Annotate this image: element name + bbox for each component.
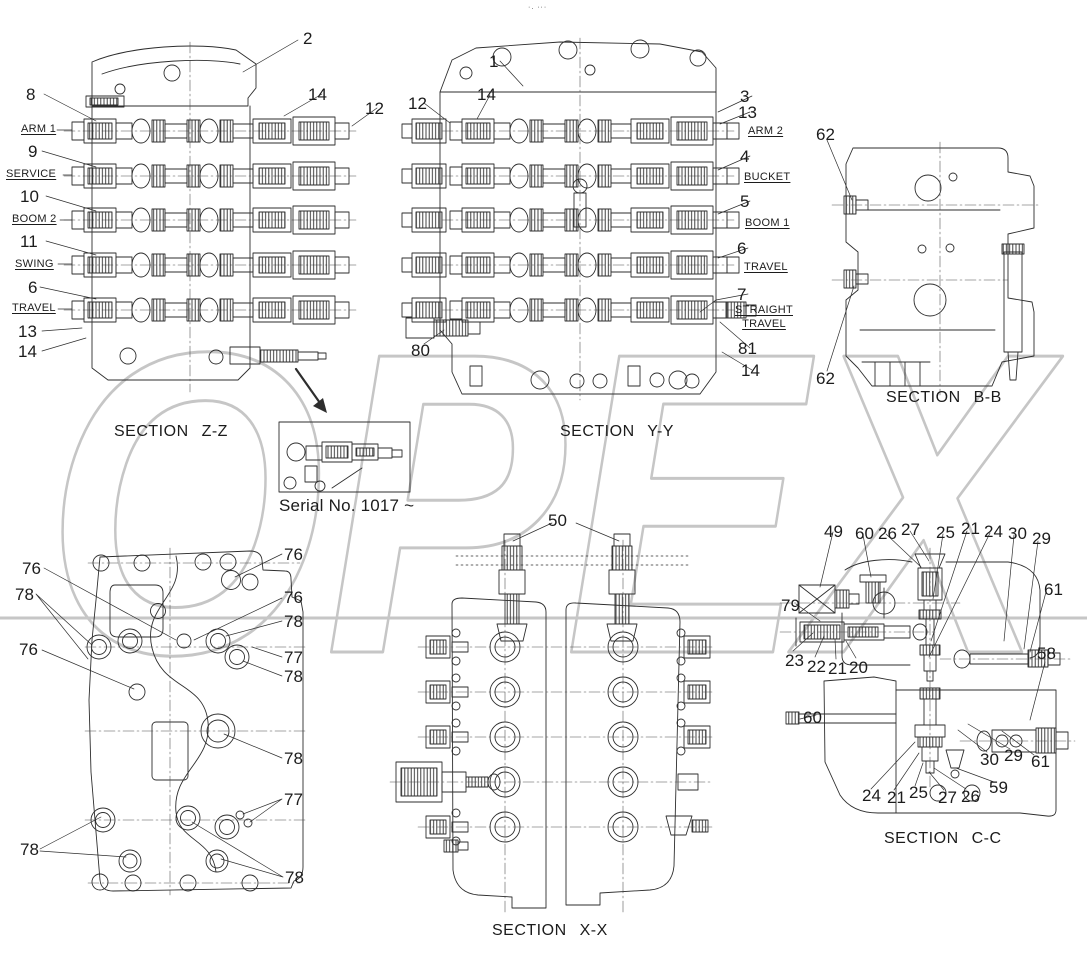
callout-22: 22 <box>807 658 826 676</box>
port-label-arm-2: ARM 2 <box>748 126 783 138</box>
callout-14: 14 <box>477 86 496 104</box>
callout-78: 78 <box>20 841 39 859</box>
callout-21: 21 <box>887 789 906 807</box>
callout-12: 12 <box>365 100 384 118</box>
section-title-yy: SECTION Y-Y <box>560 424 674 441</box>
callout-26: 26 <box>878 525 897 543</box>
port-label-service: SERVICE <box>6 169 56 181</box>
port-label-travel: TRAVEL <box>744 262 788 274</box>
labels-layer: ·. ···SECTION Z-ZSECTION Y-YSECTION B-BS… <box>0 0 1087 959</box>
callout-61: 61 <box>1031 753 1050 771</box>
callout-13: 13 <box>738 104 757 122</box>
callout-29: 29 <box>1004 747 1023 765</box>
callout-76: 76 <box>22 560 41 578</box>
callout-1: 1 <box>489 53 498 71</box>
callout-24: 24 <box>984 523 1003 541</box>
inset-caption: Serial No. 1017 ~ <box>279 497 414 515</box>
callout-7: 7 <box>737 286 746 304</box>
parts-diagram-page: OPEX <box>0 0 1087 959</box>
callout-59: 59 <box>989 779 1008 797</box>
section-title-zz: SECTION Z-Z <box>114 424 228 441</box>
section-title-cc: SECTION C-C <box>884 831 1002 848</box>
callout-4: 4 <box>740 148 749 166</box>
callout-50: 50 <box>548 512 567 530</box>
callout-81: 81 <box>738 340 757 358</box>
callout-77: 77 <box>284 791 303 809</box>
callout-29: 29 <box>1032 530 1051 548</box>
port-label-swing: SWING <box>15 259 54 271</box>
port-label-travel: TRAVEL <box>12 303 56 315</box>
callout-30: 30 <box>980 751 999 769</box>
callout-10: 10 <box>20 188 39 206</box>
callout-30: 30 <box>1008 525 1027 543</box>
callout-62: 62 <box>816 370 835 388</box>
callout-49: 49 <box>824 523 843 541</box>
callout-77: 77 <box>284 649 303 667</box>
callout-20: 20 <box>849 659 868 677</box>
callout-76: 76 <box>284 546 303 564</box>
callout-78: 78 <box>284 750 303 768</box>
callout-60: 60 <box>803 709 822 727</box>
callout-27: 27 <box>938 789 957 807</box>
port-label-straight-travel: STRAIGHT TRAVEL <box>731 303 797 332</box>
callout-23: 23 <box>785 652 804 670</box>
callout-14: 14 <box>308 86 327 104</box>
callout-78: 78 <box>284 613 303 631</box>
callout-60: 60 <box>855 525 874 543</box>
callout-58: 58 <box>1037 645 1056 663</box>
callout-80: 80 <box>411 342 430 360</box>
page-top-marks: ·. ··· <box>528 4 547 11</box>
callout-8: 8 <box>26 86 35 104</box>
callout-78: 78 <box>15 586 34 604</box>
port-label-bucket: BUCKET <box>744 172 790 184</box>
callout-62: 62 <box>816 126 835 144</box>
section-title-xx: SECTION X-X <box>492 923 608 940</box>
port-label-arm-1: ARM 1 <box>21 124 56 136</box>
callout-9: 9 <box>28 143 37 161</box>
callout-25: 25 <box>909 784 928 802</box>
callout-21: 21 <box>828 660 847 678</box>
callout-24: 24 <box>862 787 881 805</box>
callout-78: 78 <box>284 668 303 686</box>
callout-25: 25 <box>936 524 955 542</box>
callout-13: 13 <box>18 323 37 341</box>
callout-76: 76 <box>284 589 303 607</box>
callout-5: 5 <box>740 193 749 211</box>
callout-61: 61 <box>1044 581 1063 599</box>
section-title-bb: SECTION B-B <box>886 390 1002 407</box>
callout-26: 26 <box>961 788 980 806</box>
port-label-boom-1: BOOM 1 <box>745 218 790 230</box>
callout-14: 14 <box>18 343 37 361</box>
callout-79: 79 <box>781 597 800 615</box>
callout-21: 21 <box>961 520 980 538</box>
callout-76: 76 <box>19 641 38 659</box>
callout-78: 78 <box>285 869 304 887</box>
callout-6: 6 <box>28 279 37 297</box>
callout-6: 6 <box>737 240 746 258</box>
callout-11: 11 <box>20 233 38 251</box>
port-label-boom-2: BOOM 2 <box>12 214 57 226</box>
callout-2: 2 <box>303 30 312 48</box>
callout-14: 14 <box>741 362 760 380</box>
callout-12: 12 <box>408 95 427 113</box>
callout-27: 27 <box>901 521 920 539</box>
